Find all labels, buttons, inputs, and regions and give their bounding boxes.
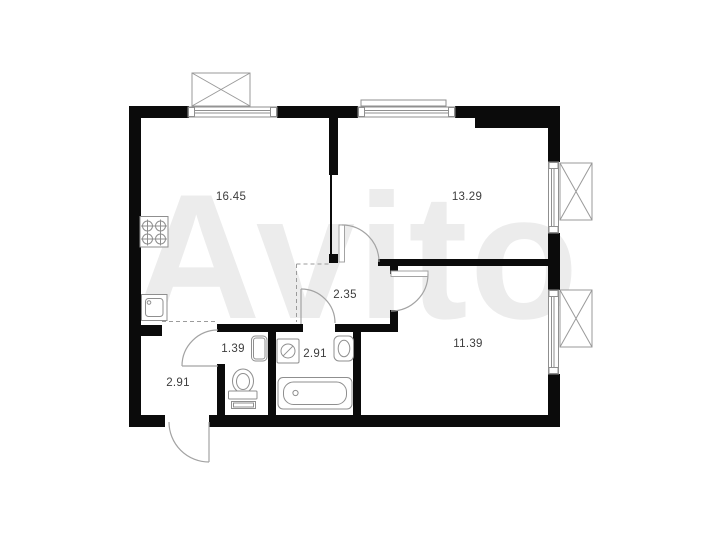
kitchen-window-icon [188, 107, 277, 117]
wc-door-icon [182, 330, 218, 366]
entrance-door-icon [169, 422, 209, 462]
stove-icon [140, 217, 168, 248]
open-boundary-lines [162, 264, 329, 322]
room-label-hallway: 2.35 [333, 289, 357, 301]
bathroom-sink-icon [334, 336, 354, 361]
room-label-entry-corridor: 2.91 [166, 377, 190, 389]
room-label-wc: 1.39 [221, 343, 245, 355]
floor-plan-drawing [0, 0, 720, 540]
balcony-box-right-lower-icon [560, 290, 592, 347]
balcony-box-top-icon [192, 73, 250, 106]
room-label-living-room: 13.29 [452, 191, 482, 203]
bathtub-icon [278, 378, 352, 410]
balcony-box-right-upper-icon [560, 163, 592, 220]
windows [188, 100, 559, 374]
bedroom-door-icon [391, 271, 428, 311]
living-room-window-icon [358, 100, 455, 117]
living-room-door-icon [339, 225, 379, 262]
bedroom-side-window-icon [549, 290, 559, 374]
room-label-kitchen: 16.45 [216, 191, 246, 203]
room-label-bathroom: 2.91 [303, 348, 327, 360]
toilet-icon [229, 369, 258, 409]
wc-basin-icon [252, 336, 268, 361]
washing-machine-icon [277, 339, 299, 363]
living-room-side-window-icon [549, 162, 559, 233]
floor-plan: Avito [0, 0, 720, 540]
bathroom-door-icon [301, 289, 335, 324]
room-label-bedroom: 11.39 [453, 338, 482, 350]
kitchen-sink-icon [142, 295, 168, 321]
